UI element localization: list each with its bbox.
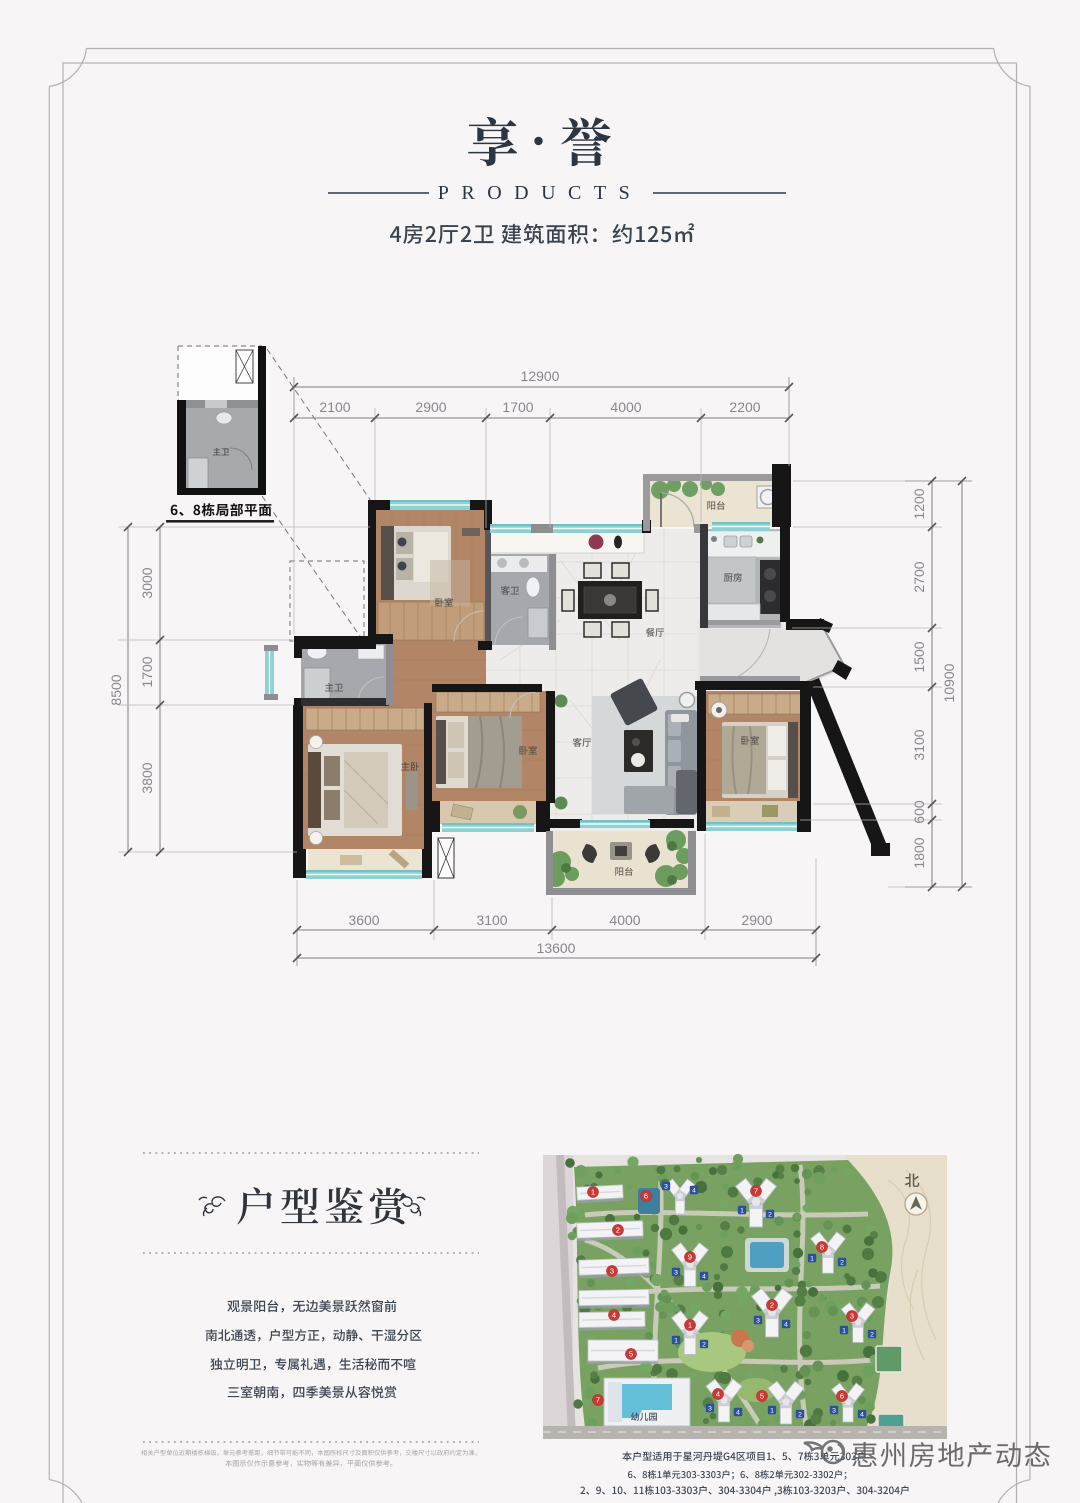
svg-text:2: 2 [870,1331,874,1338]
svg-text:1500: 1500 [911,641,927,672]
svg-text:3100: 3100 [911,729,927,760]
svg-text:1: 1 [770,1407,774,1414]
svg-text:3: 3 [610,1267,614,1276]
svg-text:1: 1 [842,1327,846,1334]
svg-text:4: 4 [784,1321,788,1328]
svg-text:8500: 8500 [108,674,124,705]
svg-text:1: 1 [591,1188,595,1197]
svg-text:9: 9 [688,1253,692,1262]
svg-text:1: 1 [740,1207,744,1214]
svg-text:3: 3 [664,1183,668,1190]
svg-text:4000: 4000 [609,912,640,928]
svg-text:2900: 2900 [741,912,772,928]
svg-text:5: 5 [760,1392,764,1401]
svg-text:4: 4 [736,1409,740,1416]
svg-text:1: 1 [674,1337,678,1344]
svg-text:1: 1 [688,1321,692,1330]
svg-text:3000: 3000 [139,567,155,598]
svg-text:1800: 1800 [911,837,927,868]
svg-text:3600: 3600 [348,912,379,928]
svg-text:1700: 1700 [502,399,533,415]
svg-text:3: 3 [708,1405,712,1412]
svg-text:2900: 2900 [415,399,446,415]
svg-text:12900: 12900 [521,368,560,384]
svg-text:1200: 1200 [911,488,927,519]
svg-text:4: 4 [860,1411,864,1418]
svg-text:4: 4 [716,1390,720,1399]
svg-text:6: 6 [840,1392,844,1401]
svg-text:3100: 3100 [476,912,507,928]
svg-text:4: 4 [702,1273,706,1280]
svg-text:3: 3 [850,1312,854,1321]
svg-text:7: 7 [596,1396,600,1405]
svg-text:5: 5 [629,1350,633,1359]
svg-text:2: 2 [840,1259,844,1266]
svg-text:PRODUCTS: PRODUCTS [438,182,642,204]
svg-text:3: 3 [674,1269,678,1276]
svg-text:2: 2 [768,1211,772,1218]
svg-text:600: 600 [911,800,927,824]
svg-text:2: 2 [702,1341,706,1348]
svg-text:4: 4 [692,1187,696,1194]
svg-text:2: 2 [798,1411,802,1418]
svg-text:2: 2 [770,1301,774,1310]
svg-text:6: 6 [644,1192,648,1201]
svg-text:2200: 2200 [729,399,760,415]
svg-text:7: 7 [754,1187,758,1196]
svg-text:4: 4 [612,1311,616,1320]
svg-text:3: 3 [832,1407,836,1414]
svg-text:2700: 2700 [911,561,927,592]
svg-text:3800: 3800 [139,762,155,793]
svg-text:1: 1 [810,1255,814,1262]
svg-text:10900: 10900 [941,663,957,702]
svg-text:3: 3 [756,1317,760,1324]
svg-text:2: 2 [616,1226,620,1235]
svg-text:4000: 4000 [610,399,641,415]
svg-text:1700: 1700 [139,656,155,687]
svg-text:2100: 2100 [319,399,350,415]
svg-text:13600: 13600 [537,940,576,956]
svg-text:8: 8 [820,1243,824,1252]
